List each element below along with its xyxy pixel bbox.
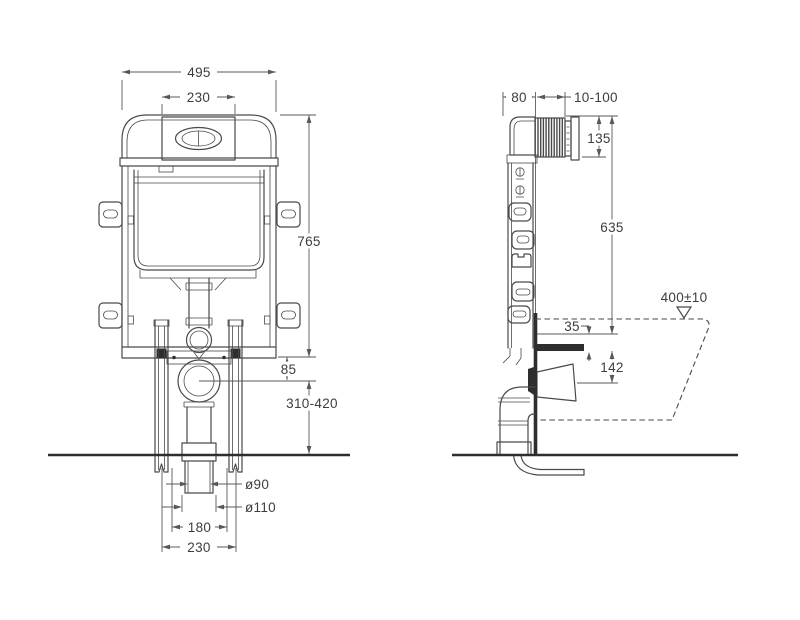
dim-outlet-inner-dia: ø90 bbox=[166, 477, 269, 492]
dim-outlet-outer-dia: ø110 bbox=[162, 495, 276, 515]
cistern-tank bbox=[134, 170, 264, 270]
screw-icon bbox=[516, 168, 524, 180]
cistern-installation-drawing: 495 230 765 85 310-420 bbox=[0, 0, 800, 620]
technical-drawing-page: 495 230 765 85 310-420 bbox=[0, 0, 800, 620]
level-triangle-icon bbox=[677, 307, 691, 318]
outlet-connector bbox=[537, 364, 576, 401]
wall-bracket-right-top bbox=[277, 202, 300, 227]
dim-label-overall-width: 495 bbox=[187, 65, 210, 80]
flush-pipe-bar bbox=[535, 344, 584, 351]
dim-label-pan-top-height: 400±10 bbox=[661, 290, 708, 305]
dim-label-pipe-offset: 35 bbox=[564, 319, 580, 334]
dim-frame-depth: 80 bbox=[503, 90, 535, 117]
outlet-joint bbox=[528, 366, 537, 397]
dim-frame-height: 765 bbox=[278, 115, 328, 357]
frame-side-rails bbox=[122, 166, 276, 358]
flush-button-icon bbox=[176, 128, 222, 150]
dim-label-plate-adjust-range: 10-100 bbox=[574, 90, 618, 105]
dim-label-outlet-offset: 85 bbox=[281, 362, 297, 377]
side-view: 80 10-100 135 635 400±10 bbox=[452, 90, 738, 476]
dim-overall-width: 495 bbox=[122, 65, 276, 113]
wall-bracket-right-bottom bbox=[277, 303, 300, 328]
dim-pipe-offset: 35 bbox=[564, 319, 591, 361]
dim-label-spacing-outer: 230 bbox=[187, 540, 210, 555]
wall-bracket-left-top bbox=[99, 202, 122, 227]
adjustment-sleeve bbox=[535, 118, 565, 157]
water-supply-pipe bbox=[514, 455, 585, 475]
front-view: 495 230 765 85 310-420 bbox=[48, 65, 350, 555]
dim-label-frame-depth: 80 bbox=[511, 90, 527, 105]
dim-outlet-drop: 142 bbox=[577, 351, 628, 383]
dim-flush-plate-width: 230 bbox=[162, 90, 235, 115]
side-frame-column bbox=[503, 117, 537, 365]
screw-icon bbox=[516, 186, 524, 198]
dim-label-outlet-inner-dia: ø90 bbox=[245, 477, 269, 492]
dim-label-flush-plate-width: 230 bbox=[187, 90, 210, 105]
outlet-assembly bbox=[167, 351, 231, 493]
dim-plate-adjust-range: 10-100 bbox=[537, 90, 618, 117]
dim-label-outlet-drop: 142 bbox=[600, 360, 623, 375]
dim-cistern-height: 635 bbox=[537, 116, 628, 334]
dim-label-outlet-height-range: 310-420 bbox=[286, 396, 338, 411]
dim-label-spacing-inner: 180 bbox=[188, 520, 211, 535]
dim-spacing-outer: 230 bbox=[162, 468, 236, 555]
dim-outlet-height-range: 310-420 bbox=[284, 381, 340, 454]
frame-top-cover bbox=[120, 115, 278, 172]
dim-label-cistern-height: 635 bbox=[600, 220, 623, 235]
dim-label-plate-height: 135 bbox=[587, 131, 610, 146]
dim-spacing-inner: 180 bbox=[172, 468, 227, 535]
wall-bracket-left-bottom bbox=[99, 303, 122, 328]
dim-pan-top-height: 400±10 bbox=[661, 290, 708, 305]
control-plate-side bbox=[565, 117, 579, 160]
flush-plate bbox=[162, 117, 235, 160]
dim-label-frame-height: 765 bbox=[297, 234, 320, 249]
dim-label-outlet-outer-dia: ø110 bbox=[245, 500, 276, 515]
outlet-elbow bbox=[497, 387, 535, 455]
